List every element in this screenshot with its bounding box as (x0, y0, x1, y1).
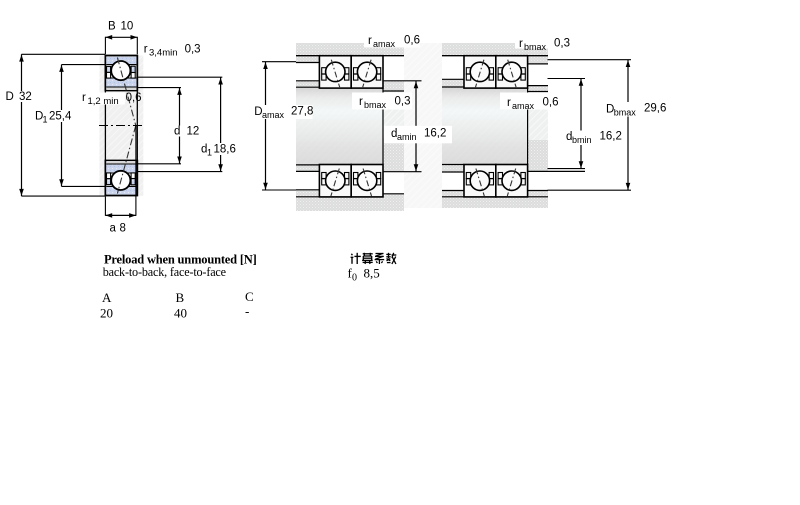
svg-text:bmax: bmax (364, 100, 387, 110)
svg-text:bmax: bmax (614, 108, 637, 118)
svg-text:A: A (102, 290, 112, 305)
svg-text:27,8: 27,8 (291, 106, 313, 118)
svg-text:25,4: 25,4 (49, 111, 72, 123)
svg-text:r: r (368, 35, 372, 47)
svg-text:amin: amin (397, 132, 417, 142)
svg-text:32: 32 (19, 91, 32, 103)
svg-text:B: B (108, 21, 116, 33)
svg-text:back-to-back, face-to-face: back-to-back, face-to-face (103, 265, 226, 279)
svg-text:10: 10 (121, 21, 134, 33)
svg-text:a: a (110, 223, 117, 235)
svg-text:0: 0 (352, 273, 357, 284)
svg-text:amax: amax (262, 110, 285, 120)
svg-text:1,2 min: 1,2 min (88, 96, 119, 107)
svg-text:3,4min: 3,4min (149, 48, 178, 59)
svg-text:r: r (82, 92, 86, 104)
svg-text:r: r (507, 97, 511, 109)
svg-text:1: 1 (43, 115, 48, 125)
svg-text:29,6: 29,6 (644, 103, 666, 115)
svg-text:8: 8 (120, 223, 126, 235)
svg-text:0,3: 0,3 (554, 38, 570, 50)
svg-text:amax: amax (512, 101, 535, 111)
svg-text:C: C (245, 289, 254, 304)
svg-text:-: - (245, 304, 249, 319)
svg-text:0,3: 0,3 (395, 96, 411, 108)
svg-text:12: 12 (187, 126, 200, 138)
svg-text:r: r (144, 44, 148, 56)
svg-text:16,2: 16,2 (600, 131, 622, 143)
svg-text:18,6: 18,6 (214, 144, 236, 156)
svg-text:bmax: bmax (524, 42, 547, 52)
svg-text:amax: amax (373, 39, 396, 49)
svg-text:40: 40 (174, 306, 187, 321)
svg-text:B: B (176, 290, 185, 305)
svg-text:0,6: 0,6 (126, 92, 142, 104)
svg-text:0,6: 0,6 (404, 35, 420, 47)
svg-text:bmin: bmin (572, 135, 592, 145)
svg-text:1: 1 (207, 148, 212, 158)
svg-text:0,3: 0,3 (185, 44, 201, 56)
svg-text:20: 20 (100, 306, 113, 321)
svg-text:0,6: 0,6 (543, 97, 559, 109)
svg-text:r: r (359, 96, 363, 108)
svg-text:8,5: 8,5 (364, 266, 380, 281)
svg-text:D: D (6, 91, 14, 103)
svg-text:r: r (519, 38, 523, 50)
svg-text:16,2: 16,2 (424, 128, 446, 140)
svg-text:d: d (174, 126, 180, 138)
